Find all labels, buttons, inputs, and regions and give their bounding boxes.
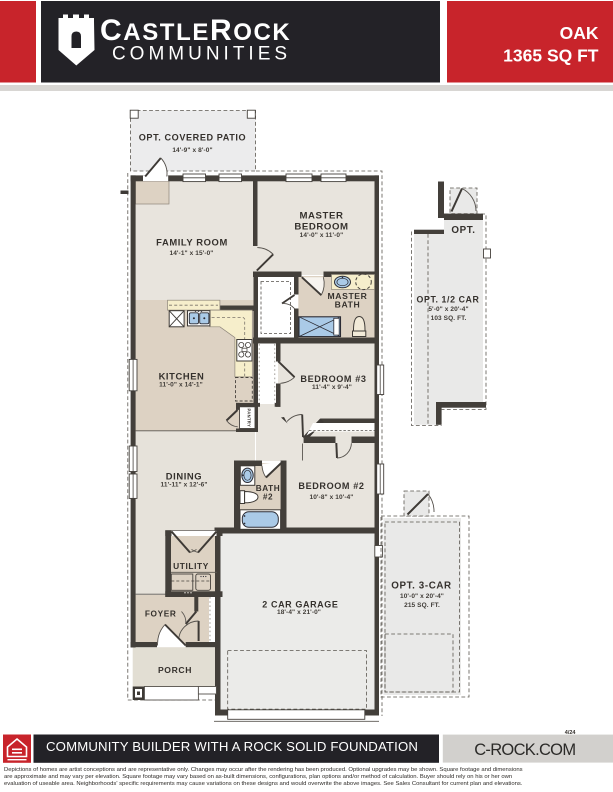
svg-text:5'-0" x 20'-4": 5'-0" x 20'-4" xyxy=(428,306,468,313)
svg-text:MASTER: MASTER xyxy=(299,211,343,222)
svg-text:BEDROOM #3: BEDROOM #3 xyxy=(300,374,366,384)
svg-text:OPT. 1/2 CAR: OPT. 1/2 CAR xyxy=(417,295,480,305)
svg-text:11'-4" x 9'-4": 11'-4" x 9'-4" xyxy=(312,384,352,391)
svg-text:BATH: BATH xyxy=(335,300,361,310)
svg-text:2 CAR GARAGE: 2 CAR GARAGE xyxy=(262,599,338,609)
svg-text:are approximate and may vary p: are approximate and may vary per elevati… xyxy=(4,774,512,780)
svg-text:14'-9" x 8'-0": 14'-9" x 8'-0" xyxy=(172,147,212,154)
svg-text:UTILITY: UTILITY xyxy=(173,561,209,571)
svg-text:Depictions of homes are artist: Depictions of homes are artist conceptio… xyxy=(4,767,523,773)
svg-text:OPT. 3-CAR: OPT. 3-CAR xyxy=(391,581,451,592)
svg-text:103 SQ. FT.: 103 SQ. FT. xyxy=(431,315,467,322)
svg-text:BEDROOM: BEDROOM xyxy=(294,222,348,233)
svg-text:DINING: DINING xyxy=(166,471,202,482)
svg-text:C-ROCK.COM: C-ROCK.COM xyxy=(474,741,575,759)
svg-text:evaluation of useable area. Ne: evaluation of useable area. Neighborhood… xyxy=(4,781,523,787)
svg-text:PORCH: PORCH xyxy=(158,665,192,675)
svg-text:CASTLEROCK: CASTLEROCK xyxy=(100,14,291,47)
svg-text:#2: #2 xyxy=(263,493,273,502)
svg-text:OPT.: OPT. xyxy=(451,225,475,236)
svg-text:10'-0" x 20'-4": 10'-0" x 20'-4" xyxy=(400,593,444,600)
svg-text:14'-0" x 11'-0": 14'-0" x 11'-0" xyxy=(300,232,344,239)
svg-text:BEDROOM #2: BEDROOM #2 xyxy=(298,481,364,491)
svg-text:10'-8" x 10'-4": 10'-8" x 10'-4" xyxy=(309,494,353,501)
svg-text:COMMUNITY BUILDER WITH A ROCK: COMMUNITY BUILDER WITH A ROCK SOLID FOUN… xyxy=(46,739,418,754)
svg-text:OPT. COVERED PATIO: OPT. COVERED PATIO xyxy=(139,133,246,143)
svg-text:FAMILY ROOM: FAMILY ROOM xyxy=(156,237,228,248)
svg-text:11'-11" x 12'-6": 11'-11" x 12'-6" xyxy=(161,482,208,489)
svg-text:1365 SQ FT: 1365 SQ FT xyxy=(503,45,599,65)
svg-text:PANTRY: PANTRY xyxy=(247,409,252,428)
svg-text:KITCHEN: KITCHEN xyxy=(159,371,205,382)
svg-text:14'-1" x 15'-0": 14'-1" x 15'-0" xyxy=(169,250,213,257)
svg-text:11'-0" x 14'-1": 11'-0" x 14'-1" xyxy=(159,382,203,389)
svg-text:215 SQ. FT.: 215 SQ. FT. xyxy=(404,602,440,609)
svg-text:18'-4" x 21'-0": 18'-4" x 21'-0" xyxy=(277,609,321,616)
svg-text:OAK: OAK xyxy=(560,23,599,43)
svg-text:FOYER: FOYER xyxy=(145,608,177,618)
svg-text:COMMUNITIES: COMMUNITIES xyxy=(112,43,291,64)
